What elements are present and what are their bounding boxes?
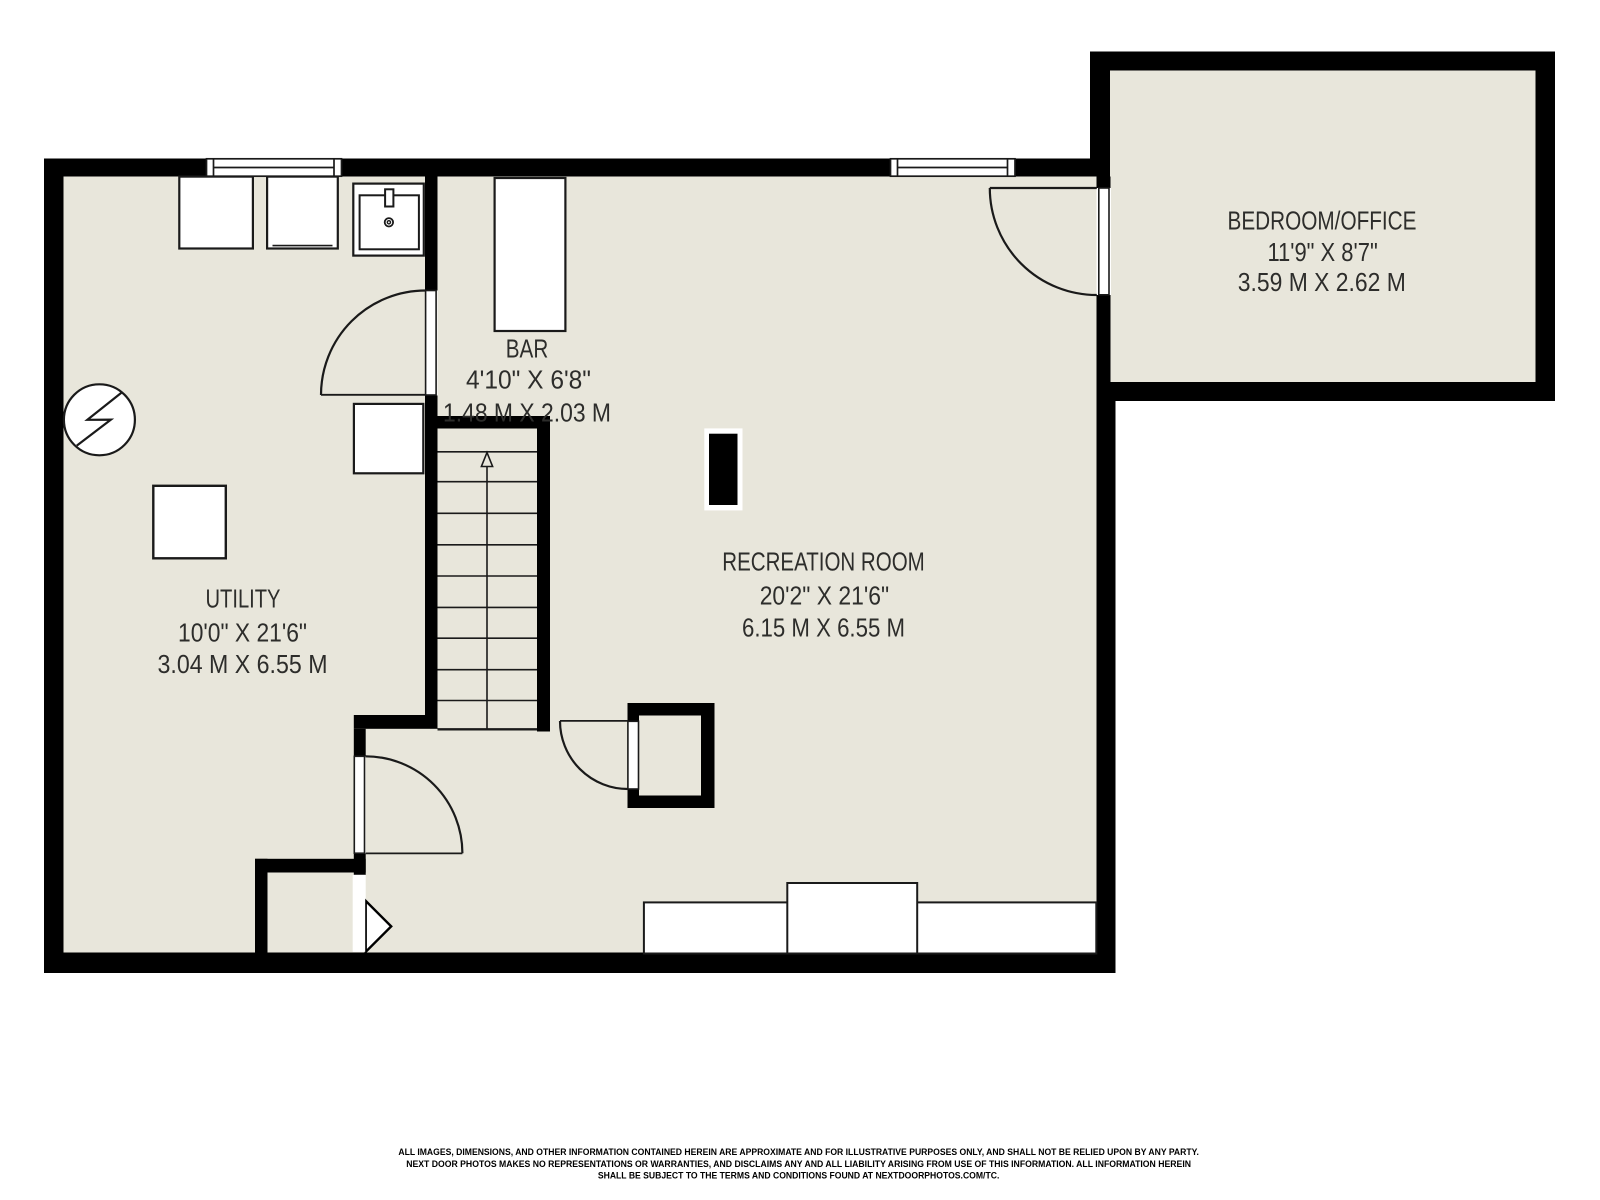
svg-text:3.59 M X 2.62 M: 3.59 M X 2.62 M [1238, 267, 1406, 297]
svg-text:10'0" X 21'6": 10'0" X 21'6" [178, 618, 307, 648]
svg-text:3.04 M X 6.55 M: 3.04 M X 6.55 M [158, 649, 328, 679]
svg-text:ALL IMAGES, DIMENSIONS, AND OT: ALL IMAGES, DIMENSIONS, AND OTHER INFORM… [398, 1147, 1199, 1158]
svg-text:BAR: BAR [506, 333, 549, 363]
svg-text:6.15 M X 6.55 M: 6.15 M X 6.55 M [742, 612, 905, 642]
svg-text:RECREATION ROOM: RECREATION ROOM [722, 547, 925, 577]
svg-text:SHALL BE SUBJECT TO THE TERMS: SHALL BE SUBJECT TO THE TERMS AND CONDIT… [598, 1171, 1000, 1182]
svg-text:BEDROOM/OFFICE: BEDROOM/OFFICE [1228, 206, 1417, 236]
svg-text:1.48 M X 2.03 M: 1.48 M X 2.03 M [443, 397, 611, 427]
svg-text:20'2" X 21'6": 20'2" X 21'6" [760, 580, 889, 610]
svg-text:UTILITY: UTILITY [206, 584, 281, 614]
svg-text:NEXT DOOR PHOTOS MAKES NO REPR: NEXT DOOR PHOTOS MAKES NO REPRESENTATION… [406, 1159, 1191, 1170]
svg-text:11'9" X 8'7": 11'9" X 8'7" [1267, 237, 1377, 267]
svg-text:4'10" X 6'8": 4'10" X 6'8" [466, 364, 591, 394]
